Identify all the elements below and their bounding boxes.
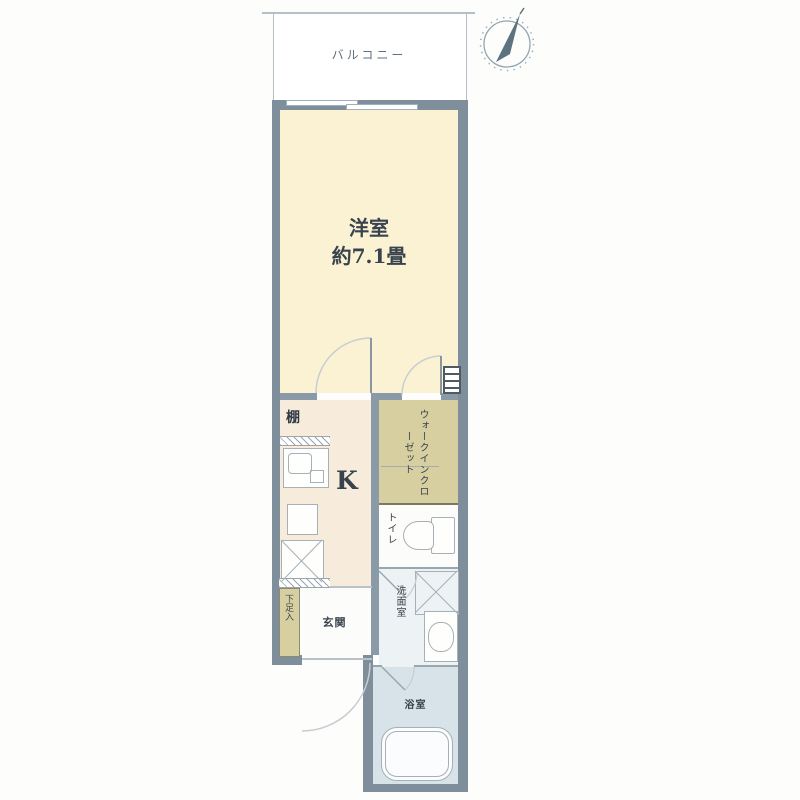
kitchen-counter-square xyxy=(287,504,318,535)
wall-lower-vertical xyxy=(363,655,373,792)
bathtub-inner xyxy=(385,731,449,777)
sink-bowl xyxy=(288,453,312,474)
compass-north-icon xyxy=(476,4,540,80)
wic-bottom-line xyxy=(379,503,458,505)
toilet-tank xyxy=(431,517,455,554)
wall-bottom xyxy=(363,784,468,792)
wall-room-bottom-right xyxy=(441,393,458,400)
stove-square xyxy=(310,470,324,483)
toilet-bowl xyxy=(403,521,434,550)
main-room-label: 洋室 約7.1畳 xyxy=(280,214,458,270)
counter-hatch-top xyxy=(280,436,330,446)
wall-unit-box xyxy=(443,366,461,394)
wall-mid-vertical xyxy=(371,393,379,655)
washbasin xyxy=(424,611,458,662)
entrance-label: 玄関 xyxy=(297,614,372,630)
main-room-name: 洋室 xyxy=(280,214,458,242)
bathroom-label: 浴室 xyxy=(373,696,458,711)
wall-room-bottom-mid xyxy=(379,393,402,400)
toilet-label: トイレ xyxy=(383,512,398,564)
wall-room-bottom-left xyxy=(280,393,317,400)
kitchen-sink-unit xyxy=(283,448,329,488)
washroom-label: 洗面室 xyxy=(392,585,407,655)
bath-top-line-right xyxy=(414,665,458,667)
balcony-label: バルコニー xyxy=(273,46,465,63)
counter-hatch-bottom xyxy=(279,578,330,588)
floor-plan: バルコニー 棚 xyxy=(0,0,800,800)
washing-machine-space xyxy=(415,571,459,615)
toilet-bottom-line xyxy=(379,567,458,569)
washbasin-bowl xyxy=(428,622,454,652)
shoe-storage-label: 下足入 xyxy=(282,594,295,652)
kitchen-label: K xyxy=(336,466,358,495)
bathtub xyxy=(381,727,453,781)
entrance-threshold-line xyxy=(302,658,372,660)
shelf-label: 棚 xyxy=(286,407,300,427)
main-room-size: 約7.1畳 xyxy=(280,242,458,270)
wic-label: ウォークインクローゼット xyxy=(392,406,430,500)
bath-top-line-left xyxy=(373,665,382,667)
wall-right xyxy=(458,100,468,792)
